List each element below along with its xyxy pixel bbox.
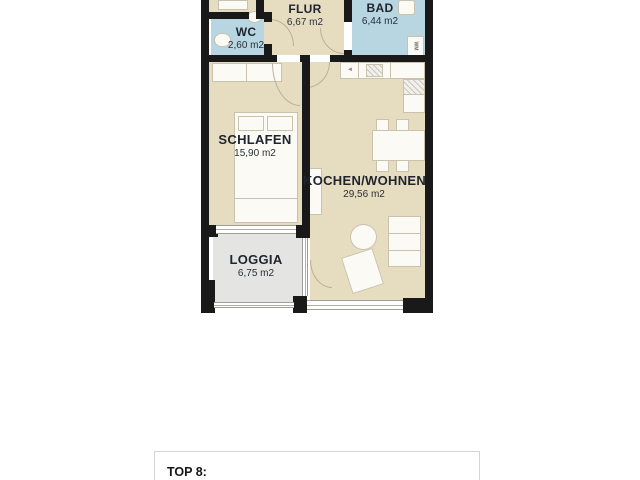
pillow-icon [267,116,293,131]
unit-info-box: TOP 8: [154,451,480,480]
room-area: 6,67 m2 [266,17,344,29]
room-name: BAD [342,2,418,16]
wall-outer-right [425,0,433,313]
wall-schlafen-kitchen [302,62,310,225]
room-label-bad: BAD 6,44 m2 [342,2,418,27]
wardrobe-icon [212,63,282,82]
wall-abstell-right [256,0,264,19]
blanket-line [234,198,298,199]
schlafen-loggia-window [216,225,296,234]
living-window [307,300,403,310]
chair-icon [396,160,409,172]
wall-loggia-top-right [296,225,310,238]
counter-divider [390,62,391,79]
wardrobe-divider [246,63,247,82]
wall-bottom-right-corner [403,298,433,313]
dining-table-icon [372,130,425,161]
washing-machine-label: WM [413,40,419,53]
cabinet-icon [218,0,248,10]
sofa-icon [388,216,421,267]
wall-bottom-left-post [201,280,215,313]
coffee-table-icon [350,224,377,250]
room-area: 6,75 m2 [210,268,302,280]
room-label-schlafen: SCHLAFEN 15,90 m2 [207,133,303,159]
room-label-loggia: LOGGIA 6,75 m2 [210,253,302,279]
room-area: 29,56 m2 [303,189,425,201]
sofa-cushion-line [388,250,421,251]
wall-abstell-bottom [209,12,249,19]
loggia-living-glass [302,238,308,296]
room-name: FLUR [266,3,344,17]
room-label-wc: WC 2,60 m2 [208,26,284,51]
chair-icon [376,160,389,172]
room-name: LOGGIA [210,253,302,268]
room-area: 6,44 m2 [342,16,418,28]
wall-loggia-bottom-post [293,296,307,313]
room-area: 15,90 m2 [207,148,303,160]
room-label-flur: FLUR 6,67 m2 [266,3,344,28]
stove-icon [366,64,383,77]
room-label-kochen-wohnen: KOCHEN/WOHNEN 29,56 m2 [303,174,425,200]
floor-plan: WM ◄ [0,0,640,330]
wall-mid-horizontal-center [300,55,310,62]
room-name: SCHLAFEN [207,133,303,148]
loggia-railing [214,302,294,308]
counter-divider [358,62,359,79]
unit-label: TOP 8: [167,465,207,479]
room-area: 2,60 m2 [208,40,284,52]
wall-mid-horizontal-left [209,55,277,62]
wall-mid-horizontal-right [330,55,425,62]
room-name: KOCHEN/WOHNEN [303,174,425,189]
fridge-icon [403,79,425,95]
page: WM ◄ [0,0,640,480]
sink-marker-icon: ◄ [345,65,355,75]
sofa-cushion-line [388,233,421,234]
pillow-icon [238,116,264,131]
